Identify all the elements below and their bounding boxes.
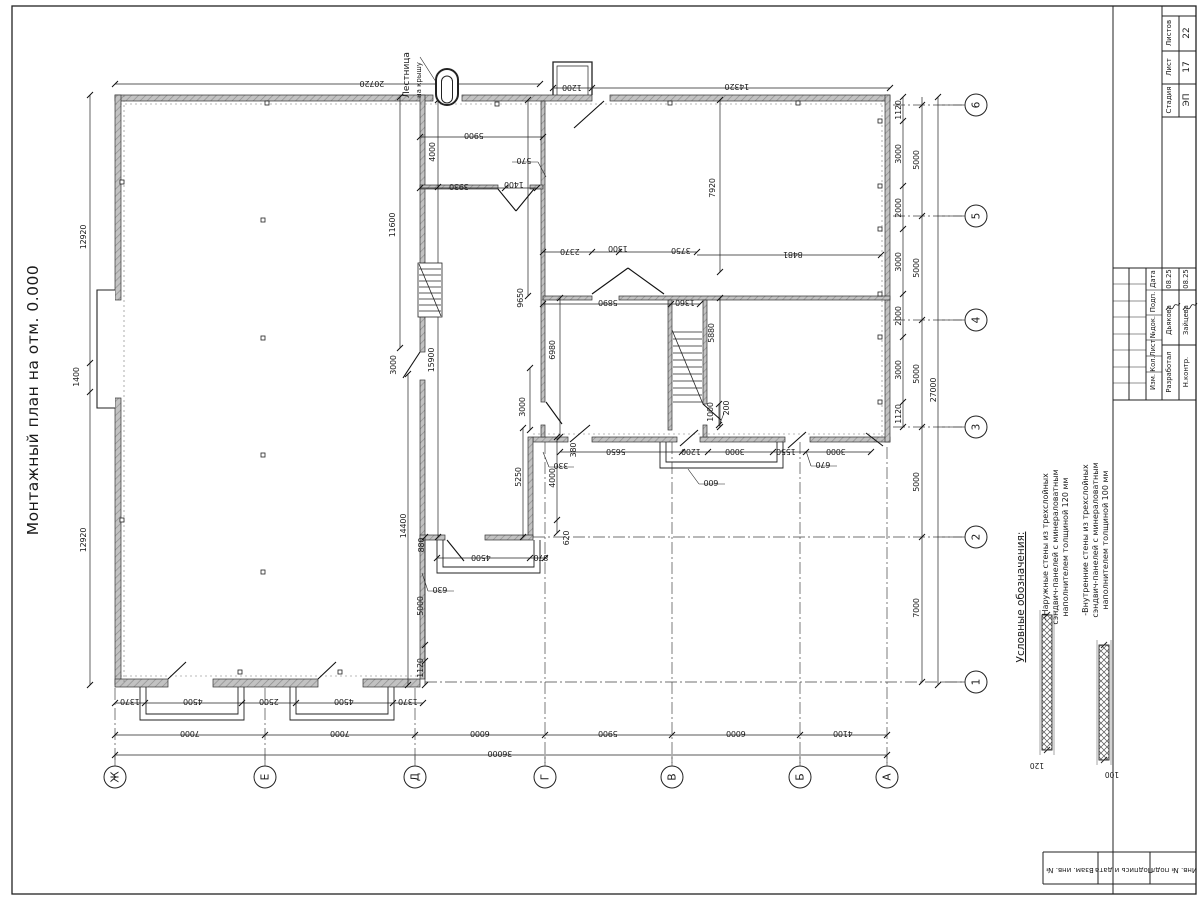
- wall-segment: [213, 679, 318, 687]
- dimension-label: 670: [816, 460, 831, 469]
- floor-plan-canvas: ЖЕДГВБА654321 Монтажный план на отм. 0.0…: [0, 0, 1200, 900]
- legend-wall-sample-inner: [1099, 645, 1109, 760]
- wall-segment: [668, 300, 672, 430]
- wall-segment: [420, 380, 425, 679]
- wall-segment: [541, 425, 545, 437]
- dimension-label: 5880: [707, 323, 716, 343]
- tb-sheet-value: 17: [1182, 61, 1192, 72]
- dimension-label: 12920: [79, 225, 88, 250]
- dimension-label: 2000: [894, 306, 903, 326]
- dimension-label: 880: [417, 538, 426, 553]
- dimension-label: 27000: [929, 378, 938, 403]
- dimension-label: 9650: [516, 288, 525, 308]
- legend-wall-sample-outer: [1042, 615, 1052, 750]
- legend-item2-line1: -Внутренние стены из трехслойных: [1081, 464, 1090, 616]
- dimension-label: 2000: [894, 198, 903, 218]
- dimension-label: 1200: [562, 83, 582, 92]
- roof-ladder-icon: [436, 69, 458, 105]
- roof-ladder-label-line2: на крышу: [415, 62, 423, 98]
- wall-segment: [485, 535, 533, 540]
- dimension-label: 5900: [598, 729, 618, 738]
- tb-stage-label: Стадия: [1165, 87, 1173, 114]
- dimension-label: 7000: [912, 598, 921, 618]
- axis-bubble-label: Г: [540, 774, 552, 780]
- dimension-label: 5000: [912, 150, 921, 170]
- legend-item2-line2: сэндвич-панелей с минераловатным: [1091, 462, 1100, 617]
- legend-item2-dim: 100: [1105, 770, 1120, 779]
- axis-bubble-label: 3: [971, 424, 983, 431]
- wall-segment: [363, 679, 420, 687]
- tb-stage-value: ЭП: [1182, 93, 1192, 106]
- dimension-label: 5000: [416, 596, 425, 616]
- title-block-text: Кол.: [1149, 356, 1157, 372]
- dimension-label: 14400: [399, 514, 408, 539]
- dimension-label: 3000: [725, 447, 745, 456]
- dimension-label: 20720: [360, 79, 385, 88]
- dimension-label: 5890: [598, 298, 618, 307]
- dimension-label: 5900: [464, 131, 484, 140]
- dimension-label: 11600: [388, 213, 397, 238]
- dimension-label: 5000: [912, 364, 921, 384]
- dimension-label: 870: [534, 553, 549, 562]
- wall-panel-texture: [115, 95, 890, 685]
- dimension-label: 6980: [548, 340, 557, 360]
- dimension-label: 4000: [548, 468, 557, 488]
- title-block-text: Инв. № подл.: [1149, 866, 1197, 874]
- dimension-label: 7000: [180, 729, 200, 738]
- dimension-label: 1000: [706, 402, 715, 422]
- dimension-label: 380: [569, 443, 578, 458]
- dimension-label: 1550: [776, 447, 796, 456]
- dimension-label: 600: [704, 478, 719, 487]
- page-title: Монтажный план на отм. 0.000: [24, 265, 42, 535]
- dimension-label: 1400: [72, 367, 81, 387]
- dimension-label: 5650: [606, 447, 626, 456]
- wall-segment: [703, 300, 707, 404]
- dimension-label: 7920: [708, 178, 717, 198]
- wall-segment: [115, 95, 433, 101]
- axis-bubble-label: Б: [795, 773, 807, 780]
- wall-segment: [700, 437, 785, 442]
- stairs: [418, 263, 703, 404]
- wall-segment: [619, 296, 890, 300]
- title-block-text: Подп.: [1149, 292, 1157, 313]
- dimension-label: 1120: [894, 404, 903, 424]
- dimension-label: 36000: [488, 749, 513, 758]
- entrance-platforms: [140, 442, 783, 720]
- axis-bubble-label: 6: [971, 101, 983, 108]
- dimension-label: 5000: [912, 472, 921, 492]
- title-block-text: Н.контр.: [1182, 357, 1190, 387]
- wall-segment: [115, 95, 121, 300]
- axis-bubble-label: 2: [971, 534, 983, 541]
- dimension-label: 12920: [79, 528, 88, 553]
- axis-bubble-label: А: [882, 773, 894, 781]
- dimension-label: 5250: [514, 467, 523, 487]
- wall-segment: [592, 437, 677, 442]
- title-block-text: 08.25: [1182, 269, 1190, 288]
- wall-segment: [703, 425, 707, 437]
- legend-header: Условные обозначения:: [1015, 532, 1027, 663]
- legend-item1-line3: наполнителем толщиной 120 мм: [1061, 477, 1070, 616]
- title-block: Стадия ЭП Лист 17 Листов 22 ДатаПодп.№до…: [1043, 6, 1197, 894]
- wall-segment: [115, 679, 168, 687]
- dimension-label: 14320: [725, 82, 750, 91]
- dimension-label: 6000: [470, 729, 490, 738]
- wall-segment: [543, 296, 592, 300]
- legend-item2-line3: наполнителем толщиной 100 мм: [1101, 470, 1110, 609]
- dimension-label: 3000: [826, 447, 846, 456]
- drawing-sheet: ЖЕДГВБА654321 Монтажный план на отм. 0.0…: [0, 0, 1200, 900]
- roof-ladder-label-line1: Лестница: [402, 52, 412, 98]
- dimension-label: 8481: [783, 250, 803, 259]
- axis-bubble-label: Д: [410, 773, 422, 781]
- dimension-label: 1400: [504, 180, 524, 189]
- panel-joint-markers: [120, 101, 882, 674]
- legend-item1-line1: - Наружные стены из трехслойных: [1041, 473, 1050, 621]
- tb-sheet-label: Лист: [1165, 58, 1173, 76]
- dimension-label: 4500: [334, 697, 354, 706]
- wall-segment: [115, 398, 121, 685]
- wall-segment: [528, 437, 533, 537]
- dimension-label: 570: [517, 156, 532, 165]
- dimension-label: 5000: [912, 258, 921, 278]
- dimension-label: 200: [722, 401, 731, 416]
- sheet-frame: [12, 6, 1196, 894]
- dimension-label: 3000: [389, 355, 398, 375]
- dimension-label: 620: [562, 531, 571, 546]
- title-block-text: Изм.: [1149, 374, 1157, 390]
- wall-segment: [533, 437, 568, 442]
- dimension-label: 6000: [726, 729, 746, 738]
- dimension-label: 4100: [833, 729, 853, 738]
- dimension-label: 1370: [398, 697, 418, 706]
- dimension-label: 3930: [449, 182, 469, 191]
- dimension-label: 2370: [560, 247, 580, 256]
- axis-bubble-label: В: [667, 773, 679, 780]
- tb-sheets-value: 22: [1182, 27, 1192, 38]
- wall-segment: [462, 95, 592, 101]
- dimension-label: 3000: [894, 360, 903, 380]
- tb-sheets-label: Листов: [1165, 20, 1173, 46]
- dimension-label: 7000: [330, 729, 350, 738]
- dimension-label: 1120: [894, 100, 903, 120]
- axis-bubble-label: 4: [971, 316, 983, 323]
- dimension-label: 1300: [608, 244, 628, 253]
- title-block-text: Лист: [1149, 339, 1157, 356]
- dimension-label: 3000: [894, 144, 903, 164]
- dimension-label: 4500: [471, 553, 491, 562]
- legend-item1-dim: 120: [1030, 761, 1045, 770]
- legend: Условные обозначения: - Наружные стены и…: [1015, 462, 1119, 779]
- title-block-text: Разработал: [1165, 351, 1173, 392]
- dimension-labels: 2072012001432059005703930140023701300375…: [72, 79, 938, 758]
- axis-bubble-label: 1: [971, 679, 983, 686]
- legend-item1-line2: сэндвич-панелей с минераловатным: [1051, 469, 1060, 624]
- walls: [115, 95, 890, 687]
- axis-bubble-label: Е: [260, 774, 272, 781]
- title-block-text: №док.: [1149, 316, 1157, 339]
- dimension-label: 3000: [894, 252, 903, 272]
- title-block-text: 08.25: [1165, 269, 1173, 288]
- dimension-label: 4500: [183, 697, 203, 706]
- title-block-text: Дата: [1149, 270, 1157, 288]
- left-gate: [97, 290, 115, 408]
- dimension-label: 3000: [518, 397, 527, 417]
- dimension-label: 4000: [428, 142, 437, 162]
- dimension-label: 1370: [120, 697, 140, 706]
- dimension-label: 15900: [427, 348, 436, 373]
- dimension-label: 2500: [259, 697, 279, 706]
- wall-segment: [885, 95, 890, 442]
- dimension-label: 630: [433, 585, 448, 594]
- title-block-text: Взам. инв. №: [1046, 866, 1094, 874]
- wall-segment: [810, 437, 890, 442]
- dimension-label: 3750: [671, 246, 691, 255]
- dimension-label: 1120: [416, 658, 425, 678]
- wall-segment: [610, 95, 890, 101]
- dimension-label: 1200: [681, 447, 701, 456]
- axis-bubble-label: Ж: [110, 771, 122, 783]
- axis-bubble-label: 5: [971, 213, 983, 220]
- title-block-text: Подпись и дата: [1095, 866, 1153, 874]
- dimension-label: 1360: [675, 298, 695, 307]
